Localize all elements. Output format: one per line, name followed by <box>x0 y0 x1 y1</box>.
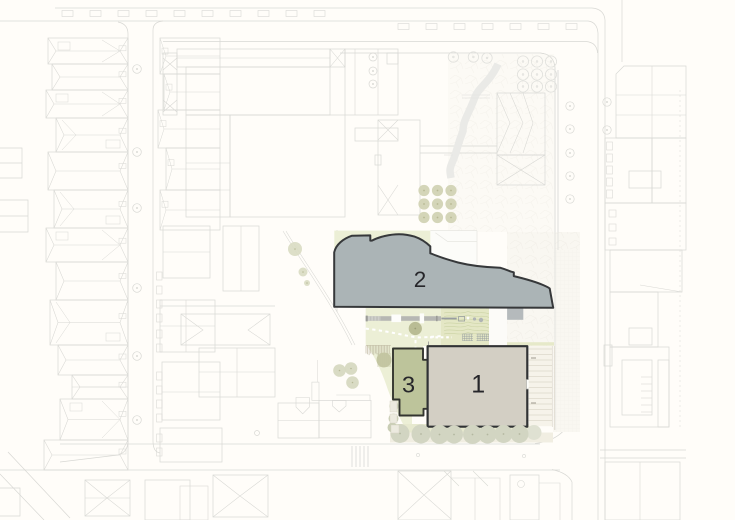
svg-text:1: 1 <box>471 370 485 398</box>
svg-text:3: 3 <box>402 372 415 398</box>
svg-text:2: 2 <box>414 267 427 292</box>
